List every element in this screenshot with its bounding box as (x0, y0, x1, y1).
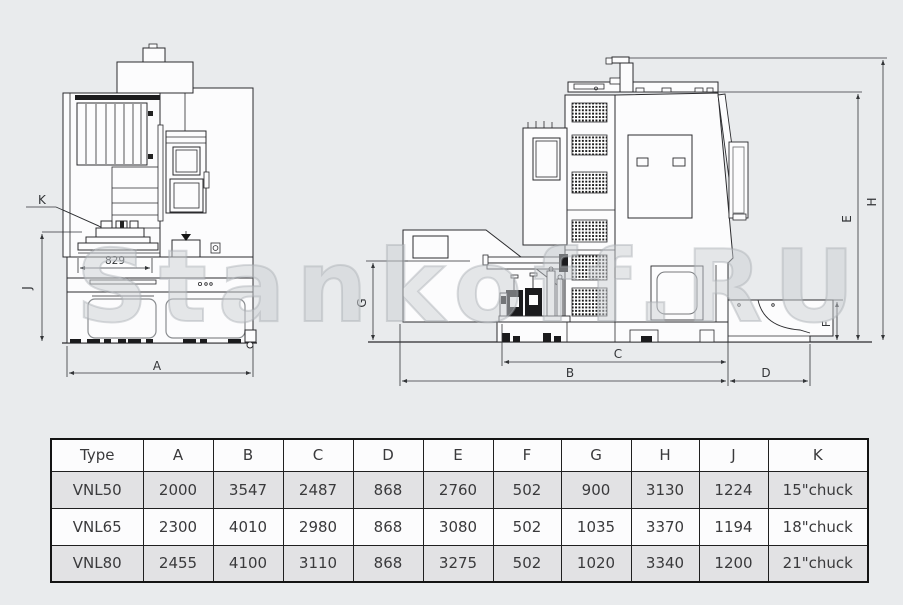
table-cell: 1035 (561, 508, 631, 545)
table-cell: 868 (353, 471, 423, 508)
table-cell: 502 (493, 545, 561, 582)
dim-label-b: B (566, 366, 574, 380)
table-cell: 3110 (283, 545, 353, 582)
table-cell: 2980 (283, 508, 353, 545)
table-cell: 2300 (143, 508, 213, 545)
table-cell: 15"chuck (768, 471, 868, 508)
table-cell: 2487 (283, 471, 353, 508)
table-cell: 4010 (213, 508, 283, 545)
table-cell: 502 (493, 471, 561, 508)
table-row-vnl80: VNL8024554100311086832755021020334012002… (51, 545, 868, 582)
table-header-cell-c: C (283, 439, 353, 471)
side-view-drawing (368, 57, 872, 342)
table-header-cell-a: A (143, 439, 213, 471)
table-header-cell-h: H (631, 439, 699, 471)
table-header-cell-e: E (423, 439, 493, 471)
table-cell: 3130 (631, 471, 699, 508)
table-cell: 18"chuck (768, 508, 868, 545)
table-cell: 502 (493, 508, 561, 545)
dim-label-f: F (820, 321, 833, 327)
table-cell: 2760 (423, 471, 493, 508)
page-background: K J 829 A (0, 0, 903, 605)
table-cell: 1200 (699, 545, 768, 582)
table-cell: 3547 (213, 471, 283, 508)
dim-label-h: H (865, 197, 879, 206)
dimensions-table: TypeABCDEFGHJK VNL5020003547248786827605… (50, 438, 869, 583)
table-cell: 2000 (143, 471, 213, 508)
table-cell: 3370 (631, 508, 699, 545)
dim-label-829: 829 (105, 255, 125, 267)
model-name-cell: VNL65 (51, 508, 143, 545)
table-header-cell-f: F (493, 439, 561, 471)
table-cell: 868 (353, 545, 423, 582)
table-row-vnl50: VNL5020003547248786827605029003130122415… (51, 471, 868, 508)
dim-label-e: E (840, 215, 854, 223)
table-cell: 868 (353, 508, 423, 545)
table-cell: 1020 (561, 545, 631, 582)
table-cell: 1224 (699, 471, 768, 508)
table-cell: 21"chuck (768, 545, 868, 582)
dim-label-j: J (20, 286, 34, 291)
table-cell: 2455 (143, 545, 213, 582)
table-header-cell-g: G (561, 439, 631, 471)
table-cell: 3275 (423, 545, 493, 582)
model-name-cell: VNL50 (51, 471, 143, 508)
table-header-cell-d: D (353, 439, 423, 471)
table-row-vnl65: VNL6523004010298086830805021035337011941… (51, 508, 868, 545)
machine-drawing: K J 829 A (0, 0, 903, 430)
table-header-row: TypeABCDEFGHJK (51, 439, 868, 471)
table-header-cell-k: K (768, 439, 868, 471)
dim-label-g: G (355, 298, 369, 307)
front-view-drawing (62, 44, 257, 348)
table-header-cell-b: B (213, 439, 283, 471)
table-cell: 3340 (631, 545, 699, 582)
dim-label-a: A (153, 359, 162, 373)
dim-label-c: C (614, 347, 622, 361)
table-cell: 1194 (699, 508, 768, 545)
table-header-cell-j: J (699, 439, 768, 471)
dim-label-k: K (38, 193, 47, 207)
table-cell: 4100 (213, 545, 283, 582)
table-cell: 900 (561, 471, 631, 508)
table-cell: 3080 (423, 508, 493, 545)
dimensions-table-container: TypeABCDEFGHJK VNL5020003547248786827605… (50, 438, 869, 583)
dim-label-d: D (761, 366, 770, 380)
table-header-cell-type: Type (51, 439, 143, 471)
model-name-cell: VNL80 (51, 545, 143, 582)
